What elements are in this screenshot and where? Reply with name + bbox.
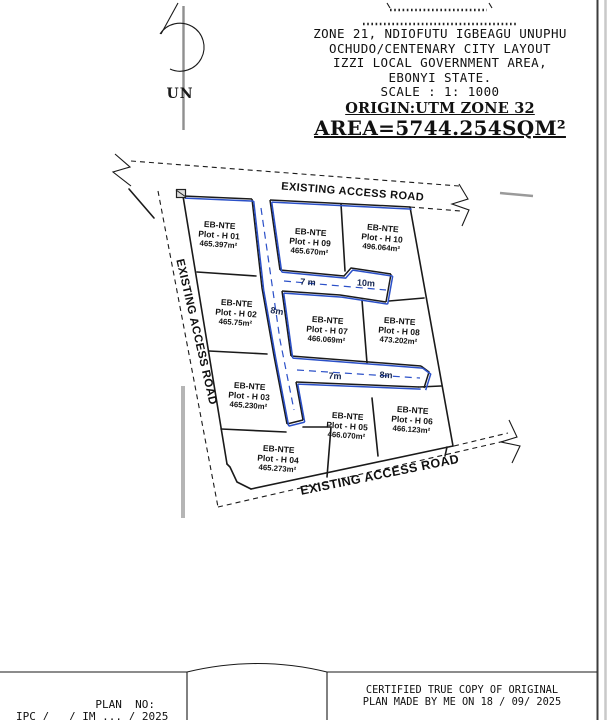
beacon-icon: [176, 190, 186, 198]
title-line-4: EBONYI STATE.: [280, 71, 600, 86]
north-arrow-label: UN: [160, 86, 200, 102]
road-dim-8m-lower: 8m: [366, 369, 406, 381]
certified-line-1: CERTIFIED TRUE COPY OF ORIGINAL: [332, 684, 592, 696]
title-block: ZONE 21, NDIOFUTU IGBEAGU UNUPHU OCHUDO/…: [280, 27, 600, 135]
total-area-label: AREA=5744.254SQM²: [280, 121, 600, 136]
origin-note: ORIGIN:UTM ZONE 32: [280, 102, 600, 117]
title-line-2: OCHUDO/CENTENARY CITY LAYOUT: [280, 42, 600, 57]
survey-plan-page: ZONE 21, NDIOFUTU IGBEAGU UNUPHU OCHUDO/…: [0, 0, 608, 720]
stamp-dotted-lines: [363, 3, 517, 24]
scale-note: SCALE : 1: 1000: [280, 85, 600, 100]
north-arrow-icon: [160, 3, 204, 130]
title-line-1: ZONE 21, NDIOFUTU IGBEAGU UNUPHU: [280, 27, 600, 42]
certified-line-2: PLAN MADE BY ME ON 18 / 09/ 2025: [332, 696, 592, 708]
title-line-3: IZZI LOCAL GOVERNMENT AREA,: [280, 56, 600, 71]
road-dim-7m-lower: 7m: [315, 370, 355, 382]
plan-no-value: IPC / / IM ... / 2025: [16, 710, 166, 720]
